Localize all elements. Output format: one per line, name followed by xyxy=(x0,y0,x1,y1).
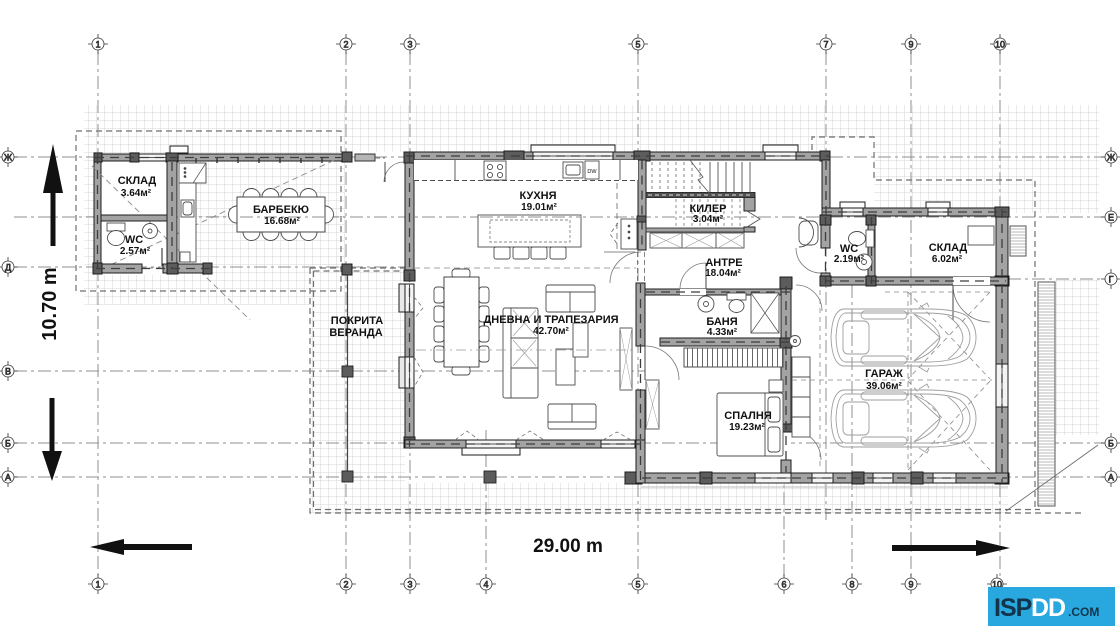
svg-text:.COM: .COM xyxy=(1068,605,1099,619)
svg-text:Б: Б xyxy=(5,439,11,449)
svg-text:Ж: Ж xyxy=(4,153,13,163)
svg-text:Г: Г xyxy=(1109,275,1114,285)
svg-text:3.64м²: 3.64м² xyxy=(121,188,152,199)
svg-text:19.23м²: 19.23м² xyxy=(729,422,765,433)
svg-text:2: 2 xyxy=(343,580,348,590)
svg-text:2.19м²: 2.19м² xyxy=(834,254,865,265)
svg-text:2.57м²: 2.57м² xyxy=(120,246,151,257)
svg-text:3: 3 xyxy=(407,40,412,50)
svg-text:ПОКРИТА: ПОКРИТА xyxy=(331,315,383,327)
svg-text:Е: Е xyxy=(1108,213,1114,223)
svg-text:5: 5 xyxy=(635,580,640,590)
svg-text:18.04м²: 18.04м² xyxy=(705,268,741,279)
svg-text:А: А xyxy=(5,473,11,483)
svg-text:СКЛАД: СКЛАД xyxy=(118,175,157,187)
svg-text:39.06м²: 39.06м² xyxy=(866,381,902,392)
svg-text:9: 9 xyxy=(908,580,913,590)
svg-text:КУХНЯ: КУХНЯ xyxy=(519,190,556,202)
svg-text:ГАРАЖ: ГАРАЖ xyxy=(865,368,903,380)
svg-text:1: 1 xyxy=(95,40,100,50)
svg-text:Ж: Ж xyxy=(1107,153,1116,163)
svg-text:6: 6 xyxy=(781,580,786,590)
svg-text:9: 9 xyxy=(908,40,913,50)
svg-text:1: 1 xyxy=(95,580,100,590)
svg-text:DW: DW xyxy=(587,169,597,175)
svg-text:6.02м²: 6.02м² xyxy=(932,254,963,265)
svg-text:29.00 m: 29.00 m xyxy=(533,536,603,557)
svg-text:10.70 m: 10.70 m xyxy=(39,267,61,340)
svg-text:10: 10 xyxy=(995,40,1005,50)
svg-text:БАРБЕКЮ: БАРБЕКЮ xyxy=(253,204,309,216)
svg-text:3: 3 xyxy=(407,580,412,590)
svg-text:WC: WC xyxy=(125,234,143,246)
svg-text:5: 5 xyxy=(635,40,640,50)
svg-text:СПАЛНЯ: СПАЛНЯ xyxy=(724,410,772,422)
svg-text:19.01м²: 19.01м² xyxy=(521,202,557,213)
svg-text:4.33м²: 4.33м² xyxy=(707,327,738,338)
svg-text:42.70м²: 42.70м² xyxy=(533,326,569,337)
svg-text:3.04м²: 3.04м² xyxy=(693,214,724,225)
svg-text:16.68м²: 16.68м² xyxy=(264,216,300,227)
svg-text:ВЕРАНДА: ВЕРАНДА xyxy=(329,327,382,339)
svg-text:А: А xyxy=(1108,473,1114,483)
svg-text:В: В xyxy=(5,367,11,377)
svg-text:Д: Д xyxy=(5,263,11,273)
svg-text:8: 8 xyxy=(849,580,854,590)
svg-text:ДНЕВНА И ТРАПЕЗАРИЯ: ДНЕВНА И ТРАПЕЗАРИЯ xyxy=(483,314,618,326)
svg-text:2: 2 xyxy=(343,40,348,50)
svg-text:DD: DD xyxy=(1031,594,1065,622)
svg-text:4: 4 xyxy=(483,580,488,590)
svg-text:ISP: ISP xyxy=(994,594,1032,622)
svg-text:Б: Б xyxy=(1108,439,1114,449)
svg-text:7: 7 xyxy=(823,40,828,50)
svg-text:СКЛАД: СКЛАД xyxy=(929,242,968,254)
